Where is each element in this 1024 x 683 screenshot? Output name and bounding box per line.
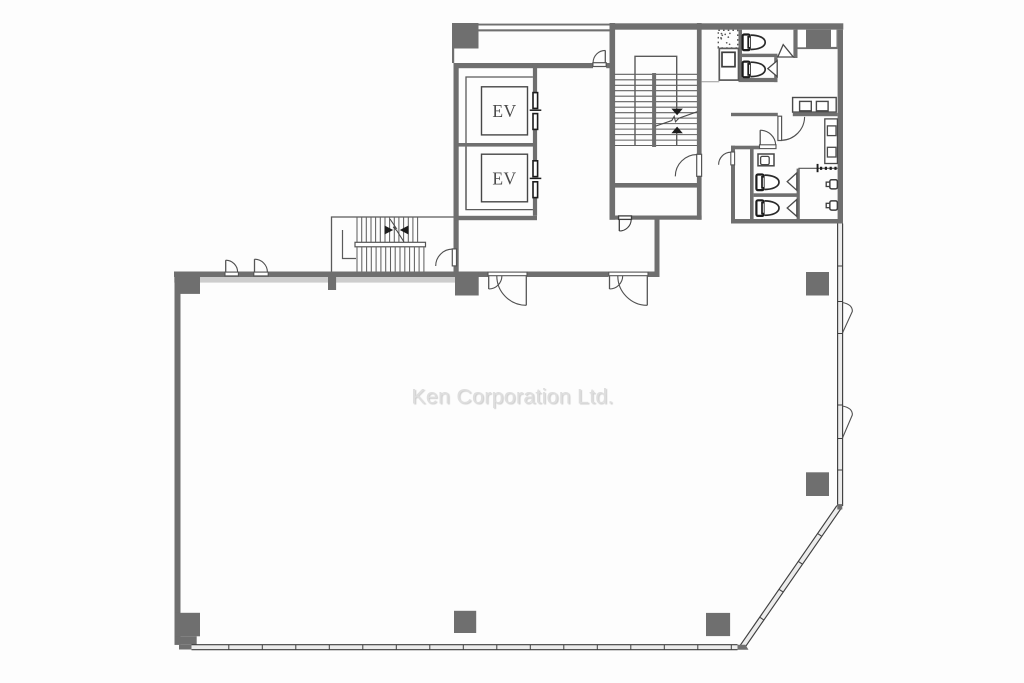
svg-text:EV: EV (492, 101, 516, 121)
svg-text:EV: EV (492, 168, 516, 188)
svg-text:Ken Corporation Ltd.: Ken Corporation Ltd. (411, 385, 613, 409)
